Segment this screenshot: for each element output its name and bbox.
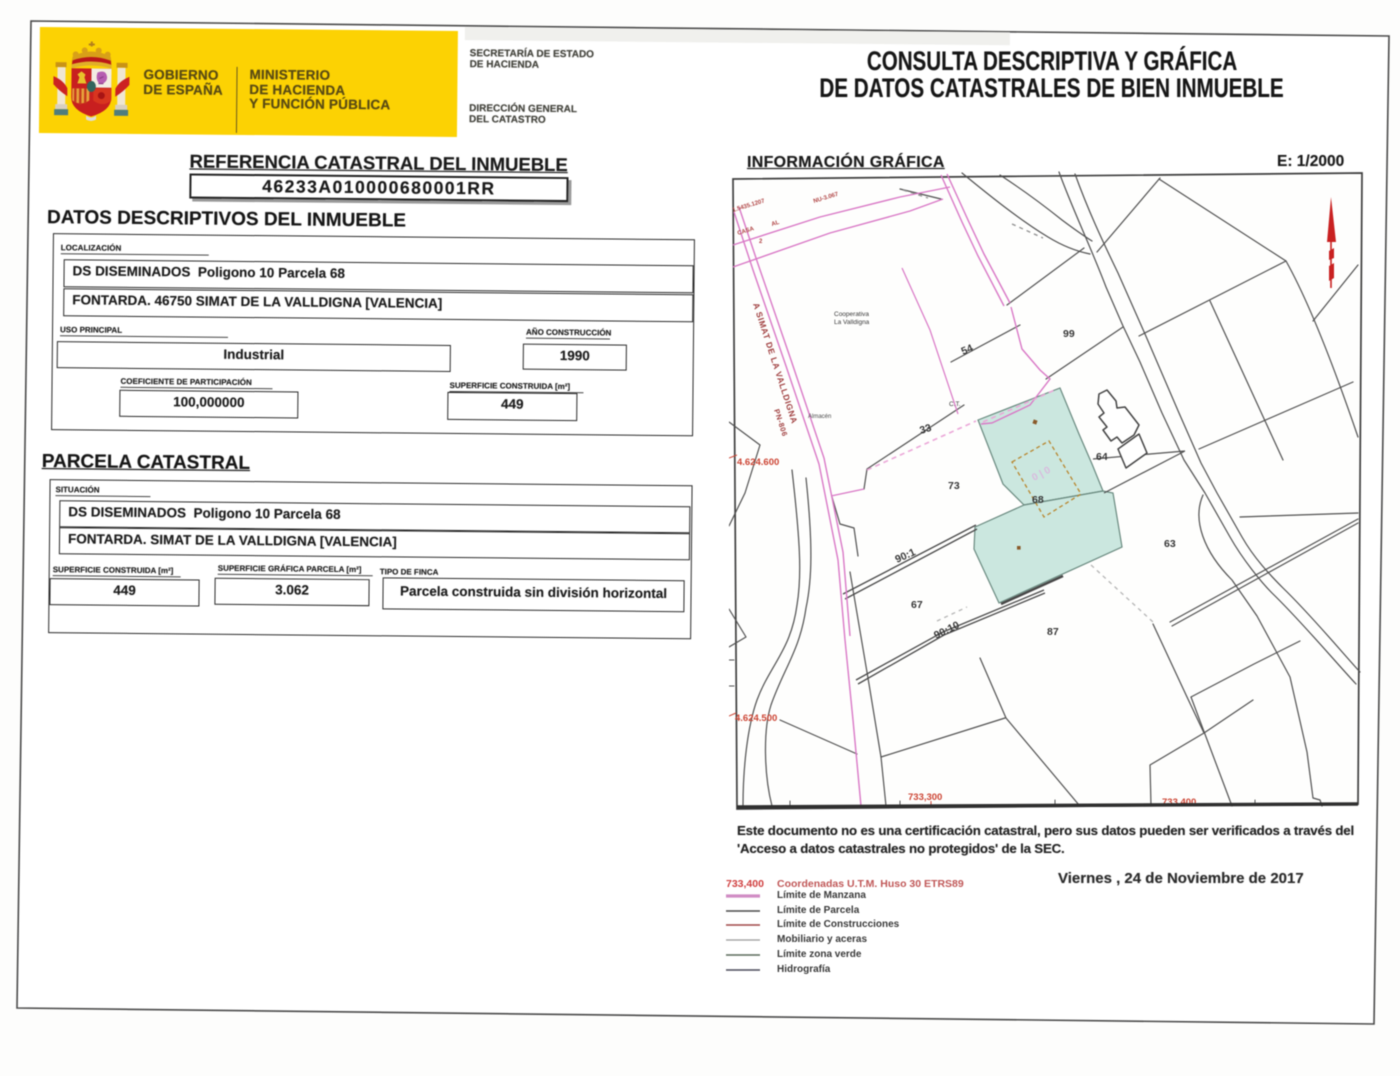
svg-text:4.624.500: 4.624.500 [735, 713, 777, 724]
svg-text:La Valldigna: La Valldigna [834, 319, 870, 326]
svg-text:C.T.: C.T. [949, 401, 961, 408]
svg-text:87: 87 [1047, 626, 1059, 638]
svg-text:Almacén: Almacén [808, 414, 831, 420]
svg-text:99: 99 [1063, 328, 1075, 340]
svg-text:68: 68 [1032, 494, 1044, 506]
svg-text:4.624.600: 4.624.600 [737, 457, 779, 468]
svg-text:67: 67 [911, 599, 923, 611]
svg-text:73: 73 [948, 480, 960, 492]
svg-text:63: 63 [1164, 538, 1176, 550]
svg-text:733,300: 733,300 [908, 792, 942, 803]
svg-text:64: 64 [1096, 451, 1108, 463]
svg-text:Cooperativa: Cooperativa [834, 311, 869, 318]
